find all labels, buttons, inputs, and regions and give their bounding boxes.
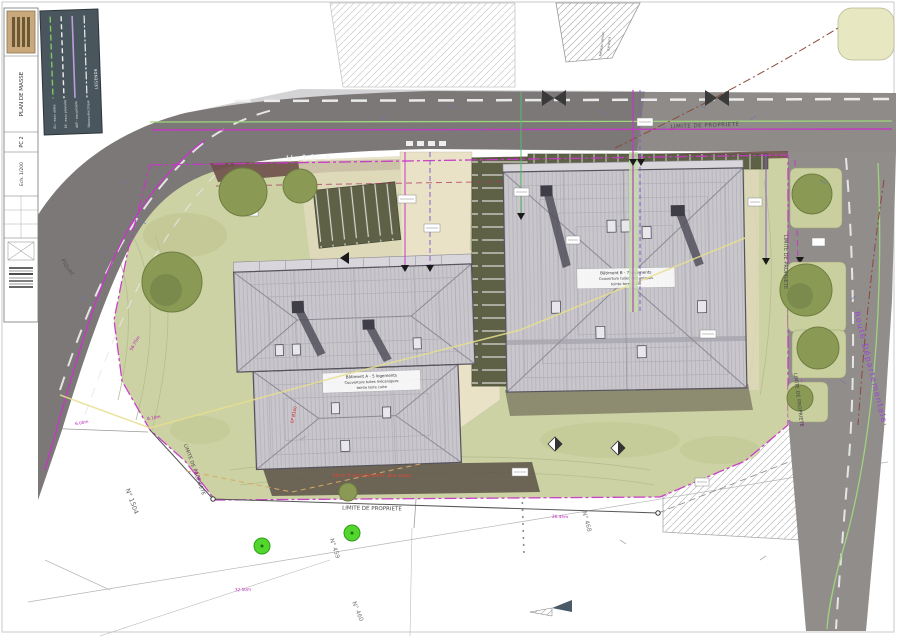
canopy-inner-shade-2: [787, 283, 813, 309]
legend-box: EU - eaux usées EP - eaux pluviales AEP …: [40, 9, 102, 135]
building-b-note-line1: Bâtiment B - 7 logements: [600, 270, 651, 276]
building-a: Bâtiment A - 5 logements Couverture tuil…: [233, 254, 478, 470]
label-red-note: Sens d'écoulement des eaux: [332, 472, 412, 479]
title-block: PLAN DE MASSE PC 2 Ech. 1/200: [4, 8, 38, 322]
label-limite-bottom: LIMITE DE PROPRIETE: [342, 505, 402, 512]
label-limite-right-1: LIMITE DE PROPRIETE: [782, 235, 788, 289]
sheet-scale: Ech. 1/200: [19, 162, 25, 186]
hatched-existing-building: [330, 3, 515, 87]
traffic-island: [838, 8, 894, 60]
label-v11a: V 11 a: [286, 153, 333, 165]
sheet-code: PC 2: [19, 136, 25, 147]
legend-title: LEGENDE: [93, 68, 99, 89]
logo: [7, 11, 35, 53]
legend-label-eu: EU - eaux usées: [52, 104, 57, 129]
building-b: Bâtiment B - 7 logements Couverture tuil…: [503, 160, 747, 392]
sheet-title: PLAN DE MASSE: [19, 71, 25, 116]
label-measure-4: 32.50m: [235, 587, 251, 593]
site-plan-drawing: Bâtiment A - 5 logements Couverture tuil…: [0, 0, 900, 637]
canopy-inner-shade: [150, 274, 182, 306]
label-measure-5: 26.45m: [552, 514, 568, 520]
site-plan-sheet: Bâtiment A - 5 logements Couverture tuil…: [0, 0, 900, 637]
